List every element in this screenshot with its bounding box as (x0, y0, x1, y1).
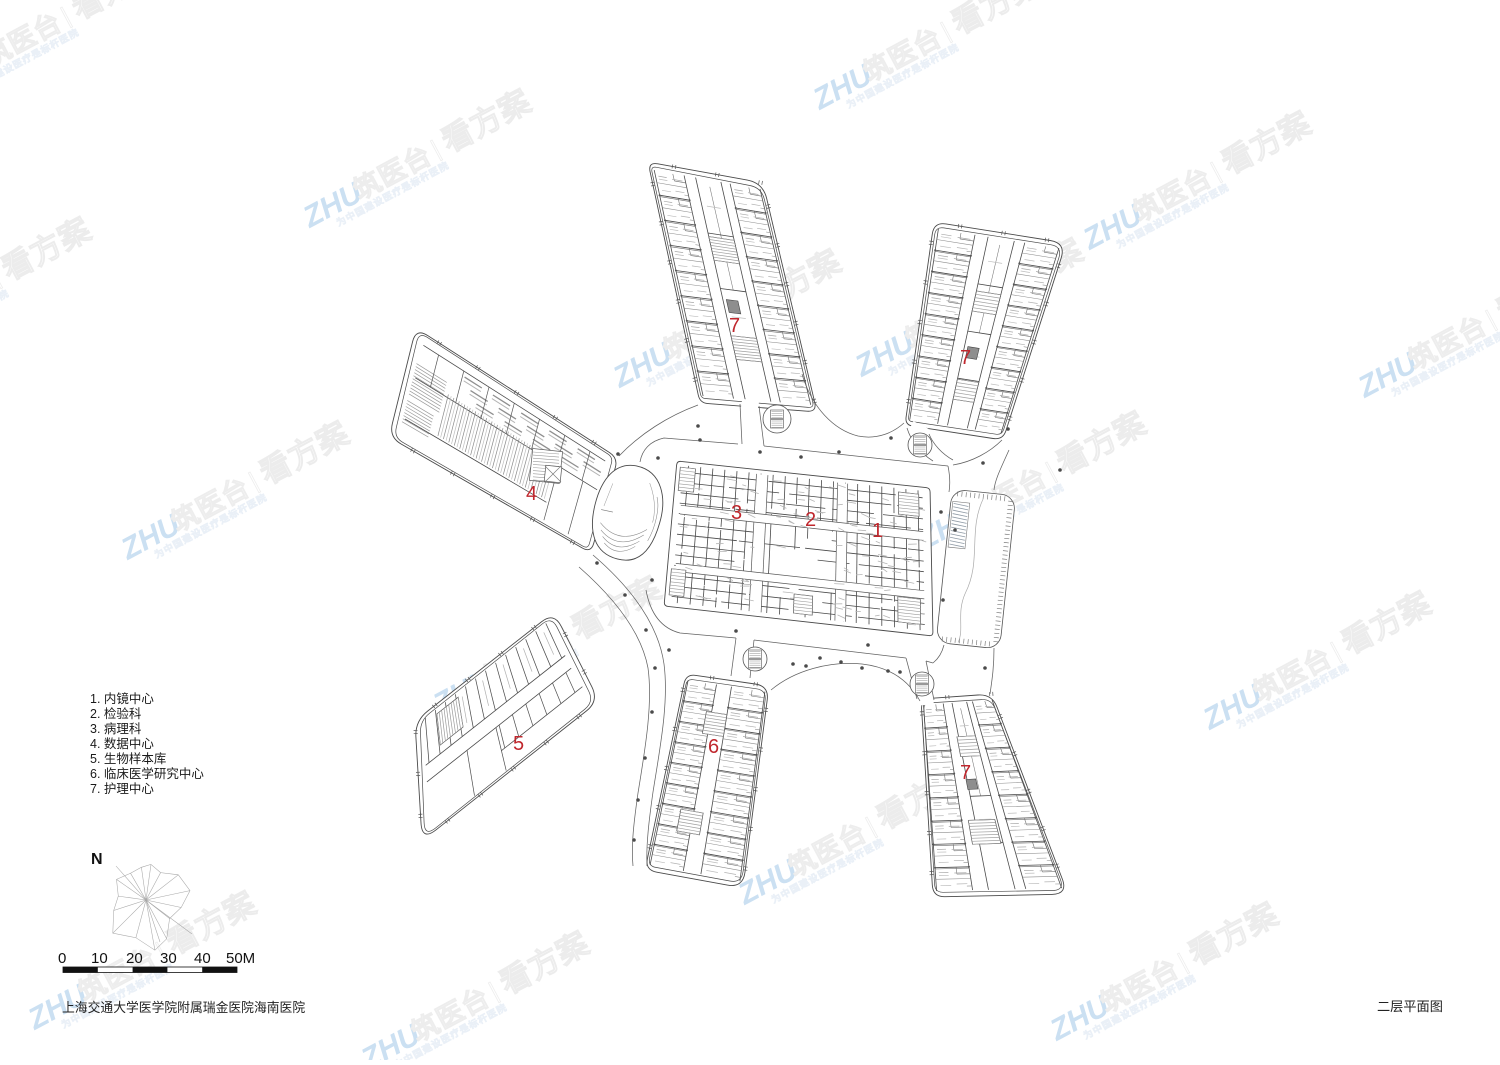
svg-text:2: 2 (805, 509, 816, 531)
svg-text:4. 数据中心: 4. 数据中心 (90, 736, 154, 751)
svg-text:5. 生物样本库: 5. 生物样本库 (90, 751, 166, 766)
svg-text:40: 40 (194, 950, 211, 967)
svg-text:0: 0 (58, 950, 66, 967)
svg-text:7: 7 (729, 315, 740, 337)
svg-text:30: 30 (160, 950, 177, 967)
svg-text:7: 7 (960, 762, 971, 784)
svg-text:3. 病理科: 3. 病理科 (90, 721, 142, 736)
svg-text:7. 护理中心: 7. 护理中心 (90, 781, 154, 796)
svg-text:6. 临床医学研究中心: 6. 临床医学研究中心 (90, 766, 204, 781)
svg-text:5: 5 (513, 733, 524, 755)
svg-text:3: 3 (731, 502, 742, 524)
svg-text:1: 1 (872, 520, 883, 542)
svg-text:二层平面图: 二层平面图 (1377, 999, 1443, 1014)
svg-text:2. 检验科: 2. 检验科 (90, 706, 142, 721)
svg-text:10: 10 (91, 950, 108, 967)
svg-text:4: 4 (526, 483, 537, 505)
svg-text:1. 内镜中心: 1. 内镜中心 (90, 691, 154, 706)
svg-text:50M: 50M (226, 950, 255, 967)
svg-text:7: 7 (960, 347, 971, 369)
svg-text:20: 20 (126, 950, 143, 967)
svg-text:6: 6 (708, 736, 719, 758)
svg-text:上海交通大学医学院附属瑞金医院海南医院: 上海交通大学医学院附属瑞金医院海南医院 (62, 1000, 305, 1015)
svg-text:N: N (91, 851, 103, 868)
